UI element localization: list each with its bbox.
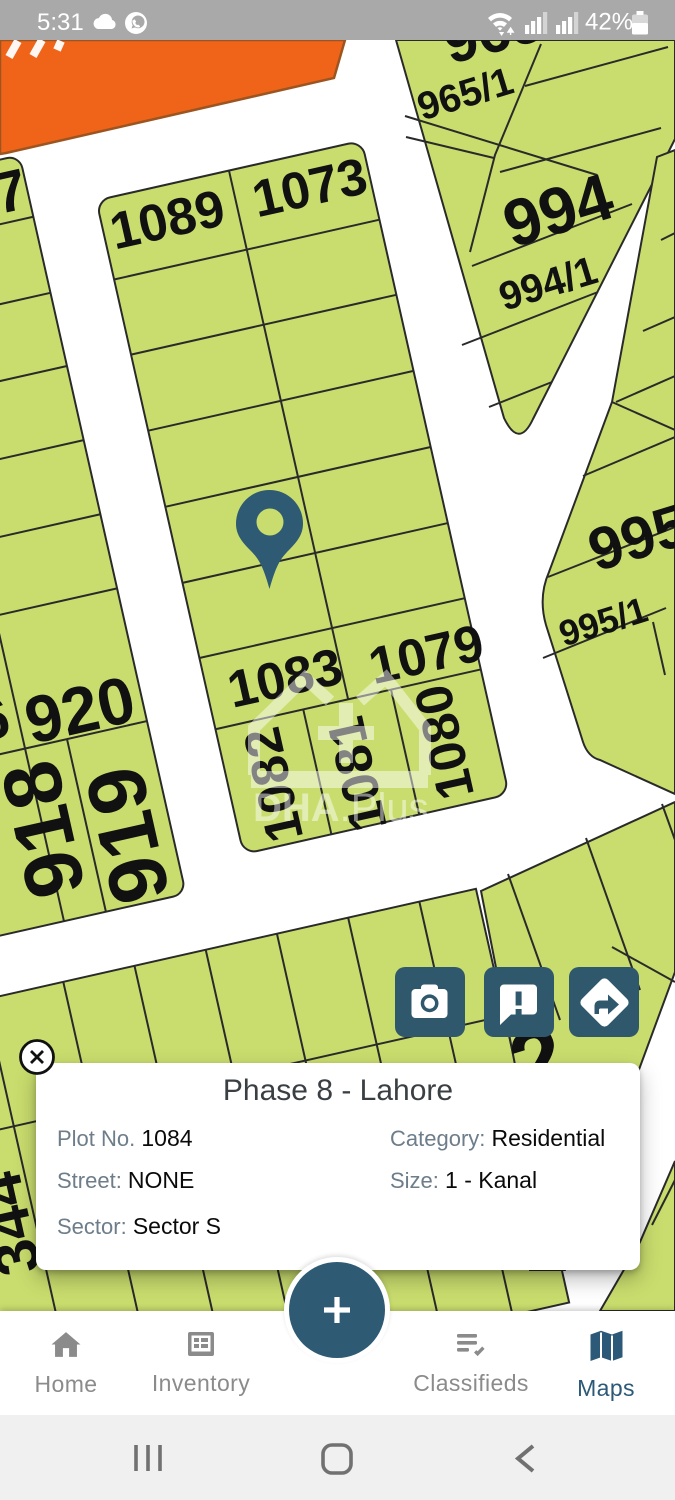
svg-text:DHA.Plus: DHA.Plus — [253, 786, 429, 830]
svg-text:42%: 42% — [585, 9, 633, 36]
